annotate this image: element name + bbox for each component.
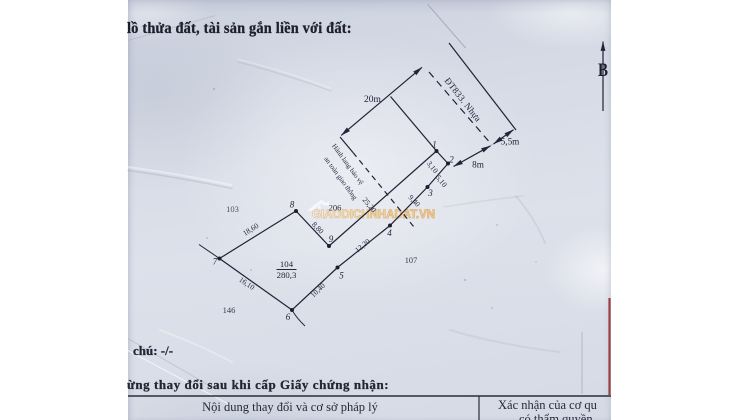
svg-text:9: 9 — [329, 234, 334, 244]
svg-text:25,20: 25,20 — [361, 196, 379, 215]
svg-text:B: B — [598, 60, 608, 81]
svg-text:12,20: 12,20 — [353, 237, 372, 255]
svg-text:6: 6 — [286, 312, 291, 322]
svg-text:an toàn giao thông: an toàn giao thông — [322, 156, 358, 202]
svg-text:16,10: 16,10 — [237, 275, 256, 292]
svg-text:107: 107 — [405, 256, 417, 265]
svg-text:7: 7 — [213, 257, 218, 267]
svg-text:10,40: 10,40 — [309, 281, 328, 299]
svg-text:5: 5 — [339, 271, 344, 281]
svg-text:146: 146 — [223, 305, 236, 315]
svg-text:20m: 20m — [364, 95, 382, 105]
svg-text:2: 2 — [449, 155, 454, 165]
svg-text:5,10: 5,10 — [434, 173, 449, 189]
svg-text:206: 206 — [329, 203, 342, 213]
svg-text:ĐT833. Nhựa: ĐT833. Nhựa — [443, 76, 484, 124]
svg-text:3,10: 3,10 — [425, 159, 440, 175]
svg-text:4: 4 — [387, 228, 392, 238]
svg-text:1: 1 — [432, 140, 437, 150]
svg-text:8,80: 8,80 — [310, 220, 326, 236]
svg-text:280,3: 280,3 — [277, 270, 297, 280]
svg-text:3: 3 — [427, 188, 433, 198]
svg-text:8: 8 — [290, 200, 295, 210]
svg-text:8m: 8m — [472, 160, 484, 170]
svg-text:5,5m: 5,5m — [501, 137, 520, 147]
svg-text:104: 104 — [280, 259, 294, 269]
svg-text:103: 103 — [226, 204, 239, 214]
